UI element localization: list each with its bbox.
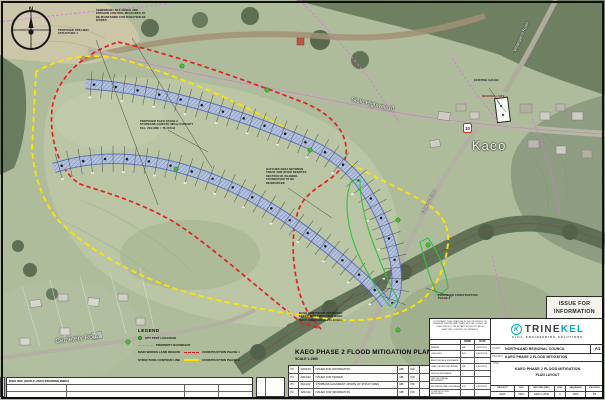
phase2-line-swatch [184, 359, 199, 361]
legend-item-cpt: CPT TEST LOCATION [138, 336, 248, 340]
sheet-size: A1 [590, 345, 603, 354]
company-logo: K TRINEKEL CIVIL ENGINEERING SOLUTIONS [491, 319, 603, 345]
note-stopbank: PROPOSED KAEO STAGE 2 STOPBANK (LENGTH 4… [140, 120, 194, 130]
legend-cpt-label: CPT TEST LOCATION [145, 336, 191, 340]
town-label-kaeo: Kaeo [472, 138, 506, 153]
revision-row: P212/10/22ISSUED FOR INFORMATIONMBKWKW [289, 389, 440, 397]
legend-item-property: PROPERTY BOUNDARY [138, 343, 248, 347]
copyright-note: COPYRIGHT: THIS DRAWING IS THE PROPERTY … [430, 319, 490, 340]
note-bank-armouring: BANK ARMOURING PROPOSED KEYED INTO PROPO… [299, 312, 351, 322]
revision-row: P420/12/22ISSUED FOR TENDERMBKWKW [289, 374, 440, 382]
title-block: COPYRIGHT: THIS DRAWING IS THE PROPERTY … [429, 318, 603, 398]
revision-row: P304/11/22STOPBANK ALIGNMENT UPDATE OF S… [289, 382, 440, 390]
company-name: TRINEKEL [525, 324, 585, 335]
signature-row: CONSTRUCTION REVIEWER-- [430, 390, 490, 397]
legend-works-label: MAIN WORKS LAND REGION [138, 350, 184, 354]
drawing-index-table: DWG REF (KEW-C-2000) DRAWING INDEX [6, 377, 253, 398]
drawing-sheet: N Kaeo State Highway 10 Cemetery Road Om… [0, 0, 605, 400]
legend-item-phase2: STRUCTURE CONTOUR LINE CONSTRUCTION PHAS… [138, 358, 248, 362]
title-block-main: K TRINEKEL CIVIL ENGINEERING SOLUTIONS A… [491, 319, 603, 397]
plan-scale: SCALE 1:1500 [295, 357, 445, 361]
trinekel-logo-icon: K [511, 324, 522, 335]
company-tagline: CIVIL ENGINEERING SOLUTIONS [512, 336, 583, 339]
legend-property-label: PROPERTY BOUNDARY [156, 343, 202, 347]
legend: LEGEND CPT TEST LOCATION PROPERTY BOUNDA… [138, 328, 248, 365]
drawing-title-cell: TITLE KAEO PHASE 2 FLOOD MITIGATION PLAN… [491, 362, 603, 386]
plan-title-block: KAEO PHASE 2 FLOOD MITIGATION PLAN LAYOU… [295, 349, 445, 361]
note-memorial: MEMORIAL SITE [482, 95, 510, 98]
title-block-signatures: COPYRIGHT: THIS DRAWING IS THE PROPERTY … [430, 319, 491, 397]
property-line-swatch [138, 345, 153, 346]
issue-line1: ISSUE FOR [547, 300, 602, 308]
project-row: PROJECT KAEO PHASE 2 FLOOD MITIGATION [491, 354, 603, 363]
legend-structure-label: STRUCTURE CONTOUR LINE [138, 358, 184, 362]
note-spillway: PROPOSED SPILLWAY STRUCTURE 1 [58, 29, 90, 36]
sh10-shield-icon: 10 [463, 123, 472, 133]
cpt-dot-swatch [138, 336, 142, 340]
client-row: CLIENT NORTHLAND REGIONAL COUNCIL [491, 345, 603, 354]
legend-phase2-label: CONSTRUCTION PHASE 2 [202, 358, 240, 362]
revision-row: P503/02/23ISSUED FOR INFORMATIONMBKWKW [289, 366, 440, 374]
legend-item-phase1: MAIN WORKS LAND REGION CONSTRUCTION PHAS… [138, 350, 248, 354]
note-gauge: EXISTING GAUGE [474, 79, 502, 82]
plan-title: KAEO PHASE 2 FLOOD MITIGATION PLAN LAYOU… [295, 349, 445, 356]
note-silt-control: TEMPORARY SILT FENCE AND EROSION CONTROL… [96, 9, 146, 23]
note-phase2: PROPOSED CONSTRUCTION PHASE 2 [438, 294, 478, 301]
note-hatched-area: HATCHED AREA BETWEEN CREST AND RIVER DEN… [266, 168, 313, 185]
revision-table: P503/02/23ISSUED FOR INFORMATIONMBKWKW P… [288, 365, 441, 397]
phase1-line-swatch [184, 352, 199, 353]
issue-line2: INFORMATION [547, 308, 602, 316]
drawing-index-row [7, 392, 252, 399]
document-number-strip: PROJECTDOCRECORD (REF)DISCSEQUENCEREVISI… [491, 386, 603, 397]
sheet-edge-tab [0, 377, 5, 397]
legend-phase1-label: CONSTRUCTION PHASE 1 [202, 350, 240, 354]
drawing-index-row [7, 385, 252, 392]
legend-title: LEGEND [138, 328, 248, 333]
index-side-panel [256, 377, 285, 397]
